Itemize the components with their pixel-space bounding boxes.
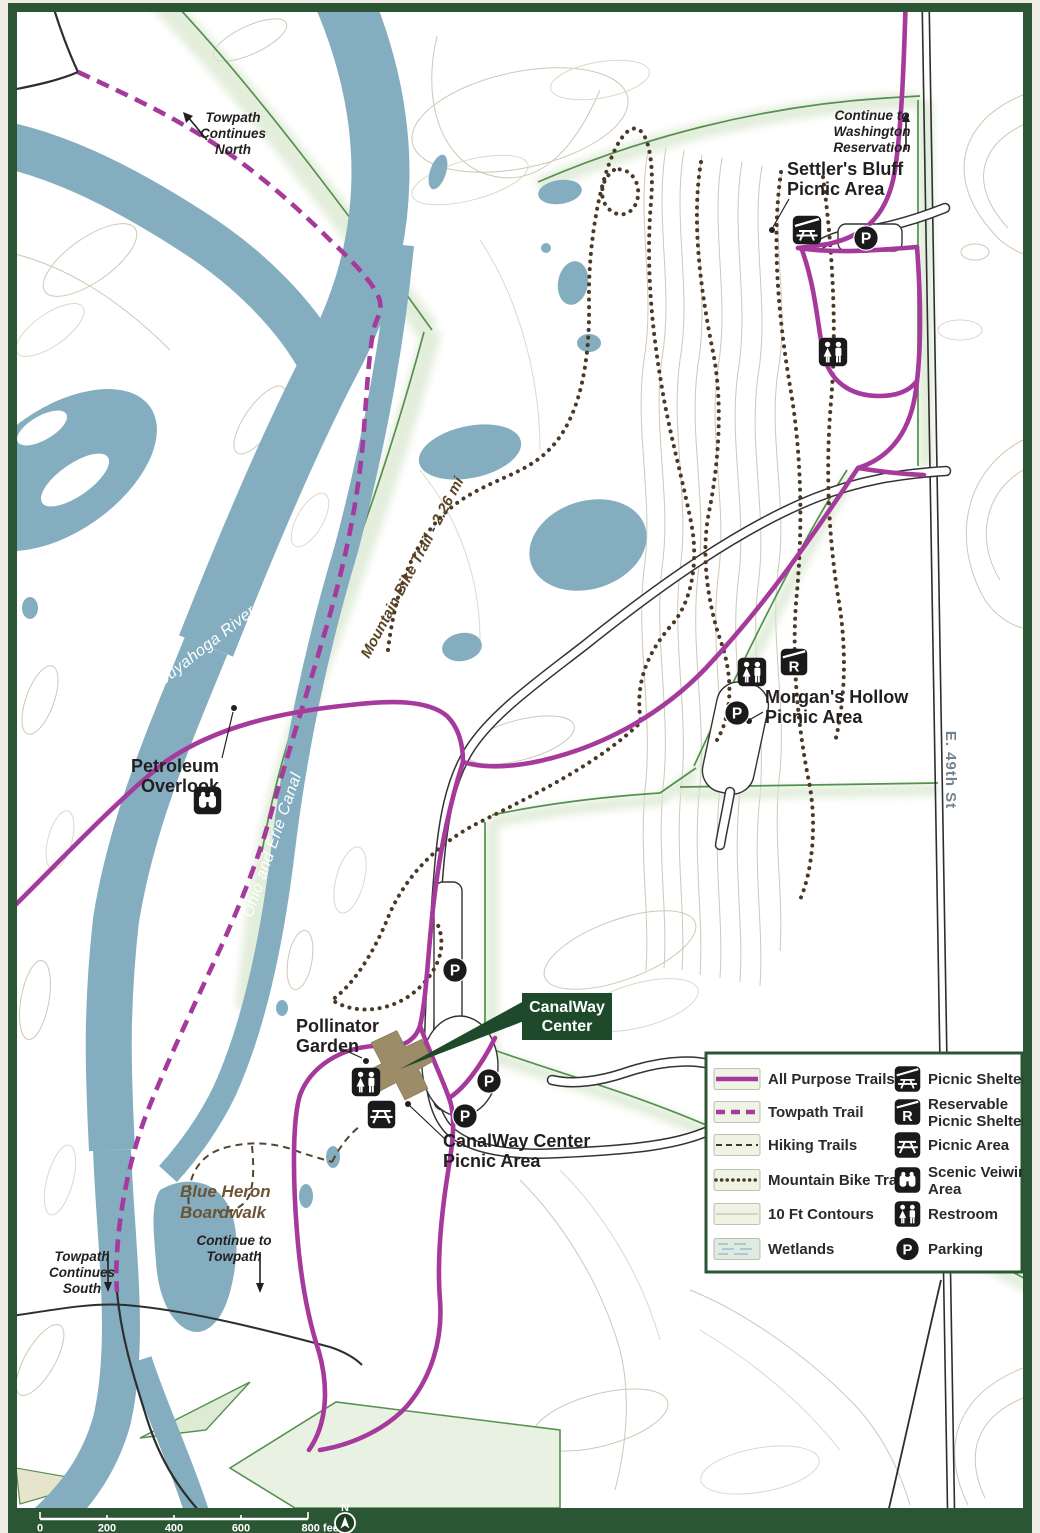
svg-text:Picnic Area: Picnic Area	[928, 1137, 1010, 1154]
svg-text:Continue to: Continue to	[197, 1233, 272, 1248]
restroom-icon	[352, 1068, 380, 1096]
legend-item-contours: 10 Ft Contours	[714, 1204, 874, 1225]
trail-map-page: R P	[0, 0, 1040, 1533]
canalway-trail-map: R P	[0, 0, 1040, 1533]
svg-text:Garden: Garden	[296, 1036, 359, 1056]
parking-icon	[854, 226, 878, 250]
svg-text:Picnic Area: Picnic Area	[787, 179, 885, 199]
reservable-picnic-shelter-icon	[781, 649, 808, 676]
e-49th-st-label: E. 49th St	[942, 731, 959, 809]
picnic-area-icon	[368, 1101, 395, 1128]
legend-item-hiking-trails: Hiking Trails	[714, 1135, 857, 1156]
svg-text:CanalWay Center: CanalWay Center	[443, 1131, 590, 1151]
svg-text:Reservation: Reservation	[833, 140, 910, 155]
svg-text:Morgan's Hollow: Morgan's Hollow	[765, 687, 909, 707]
restroom-icon	[819, 338, 847, 366]
legend-item-parking: Parking	[896, 1237, 983, 1260]
canalway-center-label-line1: CanalWay	[529, 999, 605, 1016]
svg-text:10 Ft Contours: 10 Ft Contours	[768, 1206, 874, 1223]
petroleum-overlook-label: Petroleum Overlook	[131, 756, 220, 796]
svg-text:Picnic Area: Picnic Area	[765, 707, 863, 727]
svg-text:Reservable: Reservable	[928, 1096, 1008, 1113]
scale-tick-600: 600	[232, 1523, 250, 1533]
legend-item-picnic-area: Picnic Area	[895, 1132, 1010, 1158]
svg-text:Overlook: Overlook	[141, 776, 220, 796]
scenic-viewing-area-icon	[895, 1167, 921, 1193]
svg-text:Scenic Veiwing: Scenic Veiwing	[928, 1164, 1036, 1181]
scale-tick-200: 200	[98, 1523, 116, 1533]
svg-text:Continues: Continues	[200, 126, 266, 141]
svg-text:South: South	[63, 1281, 101, 1296]
svg-text:Picnic Area: Picnic Area	[443, 1151, 541, 1171]
parking-icon	[443, 958, 467, 982]
legend-item-wetlands: Wetlands	[714, 1239, 834, 1260]
bottom-bar	[8, 1508, 1032, 1533]
svg-text:Settler's Bluff: Settler's Bluff	[787, 159, 904, 179]
svg-text:Wetlands: Wetlands	[768, 1241, 834, 1258]
svg-text:Picnic Shelter: Picnic Shelter	[928, 1113, 1027, 1130]
legend-item-all-purpose-trails: All Purpose Trails	[714, 1069, 895, 1090]
svg-text:Restroom: Restroom	[928, 1206, 998, 1223]
reservable-picnic-shelter-icon	[895, 1099, 921, 1125]
legend-item-towpath-trail: Towpath Trail	[714, 1102, 864, 1123]
legend-item-picnic-shelter: Picnic Shelter	[895, 1066, 1028, 1092]
svg-text:Towpath Trail: Towpath Trail	[768, 1104, 864, 1121]
scale-tick-0: 0	[37, 1523, 43, 1533]
svg-text:Hiking Trails: Hiking Trails	[768, 1137, 857, 1154]
svg-text:Mountain Bike Trails: Mountain Bike Trails	[768, 1172, 914, 1189]
svg-text:Area: Area	[928, 1181, 962, 1198]
restroom-icon	[738, 658, 766, 686]
svg-text:Towpath: Towpath	[207, 1249, 262, 1264]
continue-washington-label: Continue to Washington Reservation	[833, 108, 910, 155]
svg-text:Blue Heron: Blue Heron	[180, 1182, 271, 1201]
legend-item-mountain-bike-trails: Mountain Bike Trails	[714, 1170, 914, 1191]
svg-text:Continues: Continues	[49, 1265, 115, 1280]
svg-text:Washington: Washington	[834, 124, 911, 139]
picnic-shelter-icon	[793, 216, 821, 244]
svg-text:Boardwalk: Boardwalk	[180, 1203, 268, 1222]
legend: All Purpose Trails Towpath Trail Hiking …	[706, 1053, 1036, 1272]
legend-item-restroom: Restroom	[895, 1201, 998, 1227]
svg-text:Towpath: Towpath	[206, 110, 261, 125]
svg-text:Petroleum: Petroleum	[131, 756, 219, 776]
parking-icon	[453, 1104, 477, 1128]
parking-icon	[725, 701, 749, 725]
svg-text:Picnic Shelter: Picnic Shelter	[928, 1071, 1027, 1088]
svg-text:All Purpose Trails: All Purpose Trails	[768, 1071, 895, 1088]
picnic-area-icon	[895, 1132, 921, 1158]
picnic-shelter-icon	[895, 1066, 921, 1092]
canalway-center-callout: CanalWay Center	[522, 993, 612, 1040]
svg-text:North: North	[215, 142, 251, 157]
svg-text:Continue to: Continue to	[835, 108, 910, 123]
svg-text:Pollinator: Pollinator	[296, 1016, 379, 1036]
svg-text:Towpath: Towpath	[55, 1249, 110, 1264]
restroom-icon	[895, 1201, 921, 1227]
scale-tick-400: 400	[165, 1523, 183, 1533]
continue-to-towpath-label: Continue to Towpath	[197, 1233, 272, 1264]
parking-icon	[477, 1069, 501, 1093]
svg-text:Parking: Parking	[928, 1241, 983, 1258]
parking-icon	[896, 1237, 919, 1260]
canalway-center-label-line2: Center	[542, 1018, 593, 1035]
